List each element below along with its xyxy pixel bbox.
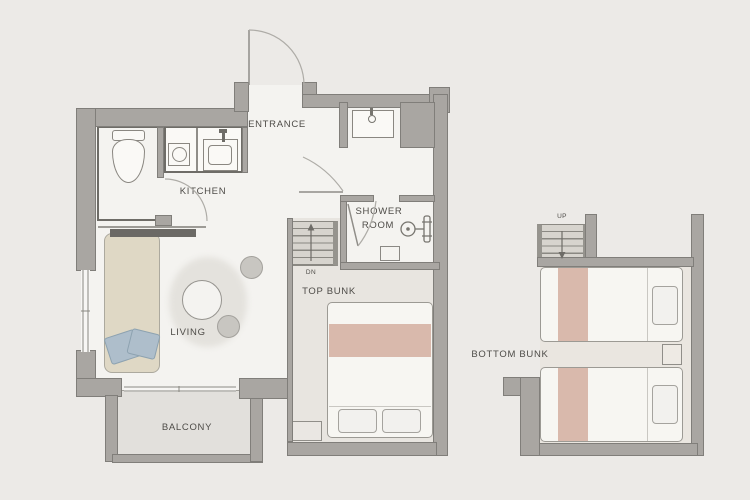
bottom-bunk-label: BOTTOM BUNK	[450, 349, 570, 361]
bed-accent-stripe	[558, 368, 588, 441]
stairs-down-label: DN	[291, 268, 331, 277]
wall-shower-top-left	[340, 195, 374, 202]
bed-fold-line	[647, 268, 648, 341]
wall-bottom	[287, 442, 437, 456]
wall-lower-bottom	[520, 443, 698, 456]
entrance-label: ENTRANCE	[237, 119, 317, 131]
wall-toilet-door-stub	[155, 215, 172, 226]
stairs-up-label: UP	[542, 212, 582, 221]
wall-toilet-kitchen-divider	[157, 127, 164, 178]
west-window-glass	[81, 270, 90, 352]
wall-entrance-stub-left	[234, 82, 249, 112]
bed-fold-line	[329, 406, 431, 407]
entrance-door	[249, 30, 304, 85]
wall-lower-L-vertical	[520, 377, 540, 456]
bed-fold-line	[647, 368, 648, 441]
wall-stair-stub	[585, 214, 597, 262]
west-window	[81, 270, 90, 352]
bed-pillow	[652, 286, 678, 325]
bed-accent-stripe	[329, 324, 431, 357]
wall-lower-top	[537, 257, 694, 267]
wall-lower-right	[691, 214, 704, 456]
floor-plan: ENTRANCE KITCHEN SHOWER ROOM LIVING BALC…	[0, 0, 750, 500]
wall-niche-right-block	[400, 102, 435, 148]
shower-room-label-line2: ROOM	[338, 220, 418, 232]
bed-pillow	[652, 385, 678, 424]
kitchen-faucet-head	[219, 129, 227, 133]
wall-right	[433, 94, 448, 456]
wall-balcony-corner-right	[239, 378, 292, 399]
coffee-table	[182, 280, 222, 320]
bed-accent-stripe	[558, 268, 588, 341]
wall-top-left	[76, 108, 248, 127]
kitchen-label: KITCHEN	[163, 186, 243, 198]
nightstand	[662, 344, 682, 365]
wall-niche-left-stub	[339, 102, 348, 148]
wall-living-bunk-divider	[287, 218, 293, 442]
top-bunk-label: TOP BUNK	[289, 286, 369, 298]
stairs-down	[288, 221, 338, 266]
stove-burner	[172, 147, 187, 162]
shower-room-label-line1: SHOWER	[339, 206, 419, 218]
stairs-up	[537, 224, 588, 261]
stool	[240, 256, 263, 279]
sliding-door-track	[98, 226, 206, 228]
entrance-door-arc	[249, 30, 304, 85]
balcony-label: BALCONY	[147, 422, 227, 434]
wall-counter-end	[242, 127, 248, 173]
sliding-door-panel	[110, 229, 196, 237]
kitchen-counter-divider	[196, 128, 198, 171]
wall-balcony-bottom	[112, 454, 263, 463]
washbasin-faucet-knob	[368, 115, 376, 123]
wall-balcony-left	[105, 395, 118, 462]
side-table	[292, 421, 322, 441]
bed-pillow	[338, 409, 377, 433]
wall-left-upper	[76, 108, 96, 271]
wall-shower-bottom	[340, 262, 440, 270]
kitchen-sink-basin	[208, 145, 232, 165]
wall-balcony-right	[250, 395, 263, 462]
wall-shower-top-right	[399, 195, 435, 202]
living-label: LIVING	[148, 327, 228, 339]
bed-pillow	[382, 409, 421, 433]
west-window-lines	[81, 270, 90, 352]
shower-drain	[380, 246, 400, 261]
